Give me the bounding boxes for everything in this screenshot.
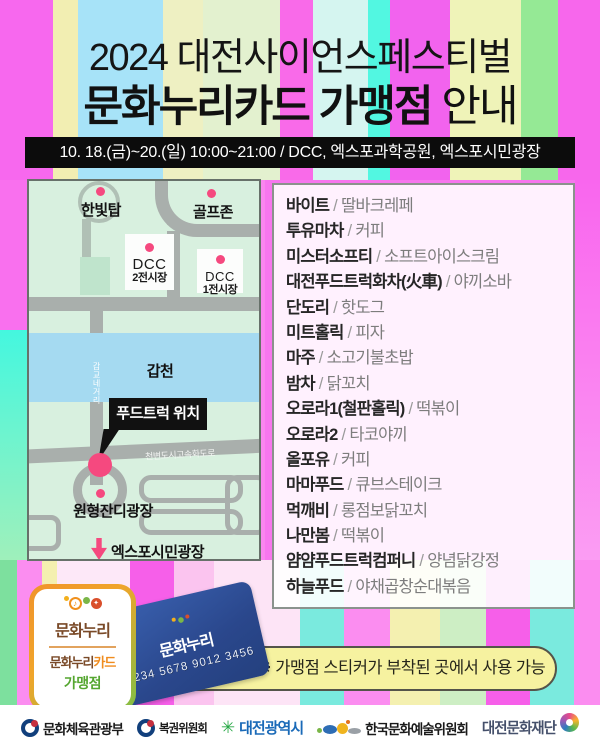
dcc-hall1-box: DCC 1전시장 <box>197 249 243 293</box>
vendor-menu: 딸바크레페 <box>341 197 413 215</box>
dot-icon <box>171 618 176 623</box>
vendor-menu: 양념닭강정 <box>427 552 499 570</box>
vendor-name: 미트홀릭 <box>286 324 344 342</box>
vendor-menu: 피자 <box>355 324 384 342</box>
sparkle-icon: ✦ <box>91 598 102 609</box>
footer-logos: 문화체육관광부 복권위원회 ✳ 대전광역시 한국문화예술위원회 대전문화재단 <box>0 705 600 750</box>
taegeuk-red-dot <box>31 720 38 727</box>
org-foundation-label: 대전문화재단 <box>482 717 556 738</box>
vendor-row: 오로라2/타코야끼 <box>286 423 573 448</box>
daejeon-emblem-icon: ✳ <box>221 719 235 736</box>
vendor-separator: / <box>408 400 412 418</box>
vendor-menu: 핫도그 <box>341 299 384 317</box>
vendor-row: 단도리/핫도그 <box>286 296 573 321</box>
sticker-card-prefix: 문화누리 <box>50 655 94 670</box>
vendor-menu: 소프트아이스크림 <box>384 248 499 266</box>
location-dot <box>96 187 105 196</box>
vendor-name: 마주 <box>286 349 315 367</box>
food-truck-location-dot <box>88 453 112 477</box>
pinwheel-icon <box>560 713 579 732</box>
dcc-hall2-box: DCC 2전시장 <box>125 234 174 290</box>
vendor-separator: / <box>446 273 450 291</box>
golf-zone-label: 골프존 <box>165 201 261 222</box>
org-daejeon-city: ✳ 대전광역시 <box>221 717 303 738</box>
hanbit-tower-label: 한빛탑 <box>53 199 149 220</box>
sticker-card-suffix: 카드 <box>93 655 115 670</box>
org-mcst: 문화체육관광부 <box>21 718 123 738</box>
vendor-separator: / <box>348 578 352 596</box>
org-arts-council-label: 한국문화예술위원회 <box>365 718 468 738</box>
vendor-name: 오로라2 <box>286 426 338 444</box>
stripe-left-teal <box>0 330 27 560</box>
music-note-icon: ♪ <box>69 597 82 610</box>
vendor-separator: / <box>419 552 423 570</box>
vendor-separator: / <box>333 527 337 545</box>
vendor-menu: 큐브스테이크 <box>355 476 441 494</box>
dcc1-name: DCC <box>197 269 243 284</box>
vertical-road-label: 갑교네거리 <box>89 353 104 413</box>
garden-path <box>225 475 261 535</box>
dot-icon <box>83 597 90 604</box>
vendor-menu: 타코야끼 <box>349 426 407 444</box>
vendor-menu: 커피 <box>341 451 370 469</box>
sticker-card-line: 문화누리카드 <box>34 652 131 671</box>
dot-icon <box>64 596 69 601</box>
round-plaza-label: 원형잔디광장 <box>53 500 173 521</box>
vendor-separator: / <box>333 451 337 469</box>
org-daejeon-foundation: 대전문화재단 <box>482 713 579 742</box>
stripe-right <box>575 180 600 560</box>
vendor-name: 올포유 <box>286 451 329 469</box>
vendor-separator: / <box>342 426 346 444</box>
vendor-menu: 떡볶이 <box>341 527 384 545</box>
vendor-name: 하늘푸드 <box>286 578 344 596</box>
dot-icon <box>177 617 184 624</box>
vendor-row: 하늘푸드/야채곱창순대볶음 <box>286 575 573 600</box>
poster: 2024 대전사이언스페스티벌 문화누리카드 가맹점 안내 10. 18.(금)… <box>0 0 600 750</box>
vendor-separator: / <box>348 476 352 494</box>
sticker-member-label: 가맹점 <box>34 673 131 693</box>
vendor-menu: 야끼소바 <box>454 273 512 291</box>
title-strong: 문화누리카드 가맹점 <box>83 83 431 131</box>
vendor-row: 오로라1(철판홀릭)/떡볶이 <box>286 397 573 422</box>
vendor-row: 바이트/딸바크레페 <box>286 194 573 219</box>
location-dot <box>207 189 216 198</box>
vendor-separator: / <box>333 299 337 317</box>
vendor-row: 투유마차/커피 <box>286 219 573 244</box>
dcc2-name: DCC <box>125 257 174 272</box>
vendor-name: 대전푸드트럭화차(火車) <box>286 273 442 291</box>
vendor-name: 얌얌푸드트럭컴퍼니 <box>286 552 415 570</box>
vendor-row: 미트홀릭/피자 <box>286 321 573 346</box>
vendor-menu: 커피 <box>355 222 384 240</box>
vendor-row: 올포유/커피 <box>286 448 573 473</box>
vendor-separator: / <box>333 197 337 215</box>
org-mcst-label: 문화체육관광부 <box>43 718 123 738</box>
vendor-menu: 롱점보닭꼬치 <box>341 502 427 520</box>
vendor-name: 나만봄 <box>286 527 329 545</box>
taegeuk-icon <box>21 719 39 737</box>
vendor-list: 바이트/딸바크레페투유마차/커피미스터소프티/소프트아이스크림대전푸드트럭화차(… <box>286 194 573 600</box>
munhwa-nuri-logo: ♪✦ <box>34 595 131 617</box>
dcc2-sub: 2전시장 <box>125 272 174 285</box>
title-tail: 안내 <box>431 83 516 131</box>
vendor-name: 밤차 <box>286 375 315 393</box>
food-truck-callout: 푸드트럭 위치 <box>109 398 207 430</box>
vendor-row: 먹깨비/롱점보닭꼬치 <box>286 499 573 524</box>
dcc1-sub: 1전시장 <box>197 284 243 297</box>
arts-council-icon <box>317 720 361 736</box>
location-dot <box>145 243 154 252</box>
sticker-inner: ♪✦ 문화누리 문화누리카드 가맹점 <box>34 589 131 707</box>
location-map: 한빛탑 골프존 DCC 2전시장 DCC 1전시장 갑교네거리 갑천 천변도시고… <box>27 179 261 561</box>
location-dot <box>216 255 225 264</box>
vendor-row: 밤차/닭꼬치 <box>286 372 573 397</box>
poster-title-line2: 문화누리카드 가맹점 안내 <box>0 72 600 134</box>
vendor-row: 마마푸드/큐브스테이크 <box>286 473 573 498</box>
vendor-menu: 야채곱창순대볶음 <box>355 578 470 596</box>
org-lottery-commission: 복권위원회 <box>137 719 207 737</box>
vendor-separator: / <box>319 375 323 393</box>
dot-icon <box>185 614 190 619</box>
vendor-menu: 닭꼬치 <box>327 375 370 393</box>
hanbit-tower-stem <box>82 219 91 259</box>
munhwa-nuri-sticker: ♪✦ 문화누리 문화누리카드 가맹점 <box>29 584 136 712</box>
vendor-row: 얌얌푸드트럭컴퍼니/양념닭강정 <box>286 549 573 574</box>
vendor-name: 미스터소프티 <box>286 248 372 266</box>
vendor-separator: / <box>348 324 352 342</box>
event-info-bar: 10. 18.(금)~20.(일) 10:00~21:00 / DCC, 엑스포… <box>25 137 575 168</box>
vendor-list-panel: 바이트/딸바크레페투유마차/커피미스터소프티/소프트아이스크림대전푸드트럭화차(… <box>272 183 575 609</box>
vendor-menu: 소고기불초밥 <box>327 349 413 367</box>
vendor-row: 미스터소프티/소프트아이스크림 <box>286 245 573 270</box>
vendor-name: 바이트 <box>286 197 329 215</box>
down-arrow-icon <box>91 538 107 560</box>
location-dot <box>96 489 105 498</box>
vendor-row: 대전푸드트럭화차(火車)/야끼소바 <box>286 270 573 295</box>
taegeuk-red-dot <box>147 720 154 727</box>
vendor-row: 마주/소고기불초밥 <box>286 346 573 371</box>
vendor-name: 오로라1(철판홀릭) <box>286 400 404 418</box>
org-daejeon-label: 대전광역시 <box>239 717 303 738</box>
vendor-separator: / <box>333 502 337 520</box>
vendor-name: 먹깨비 <box>286 502 329 520</box>
river-label: 갑천 <box>130 360 190 381</box>
org-lottery-label: 복권위원회 <box>159 720 207 736</box>
road-horizontal <box>29 297 261 311</box>
hanbit-tower-base <box>80 257 110 295</box>
sticker-brand: 문화누리 <box>34 617 131 641</box>
vendor-separator: / <box>348 222 352 240</box>
vendor-menu: 떡볶이 <box>416 400 459 418</box>
vendor-name: 단도리 <box>286 299 329 317</box>
vendor-separator: / <box>319 349 323 367</box>
vendor-separator: / <box>376 248 380 266</box>
vendor-row: 나만봄/떡볶이 <box>286 524 573 549</box>
vendor-name: 투유마차 <box>286 222 344 240</box>
citizens-plaza-label: 엑스포시민광장 <box>111 541 251 561</box>
taegeuk-icon <box>137 719 155 737</box>
divider <box>49 646 117 648</box>
vendor-name: 마마푸드 <box>286 476 344 494</box>
org-arts-council: 한국문화예술위원회 <box>317 718 468 738</box>
